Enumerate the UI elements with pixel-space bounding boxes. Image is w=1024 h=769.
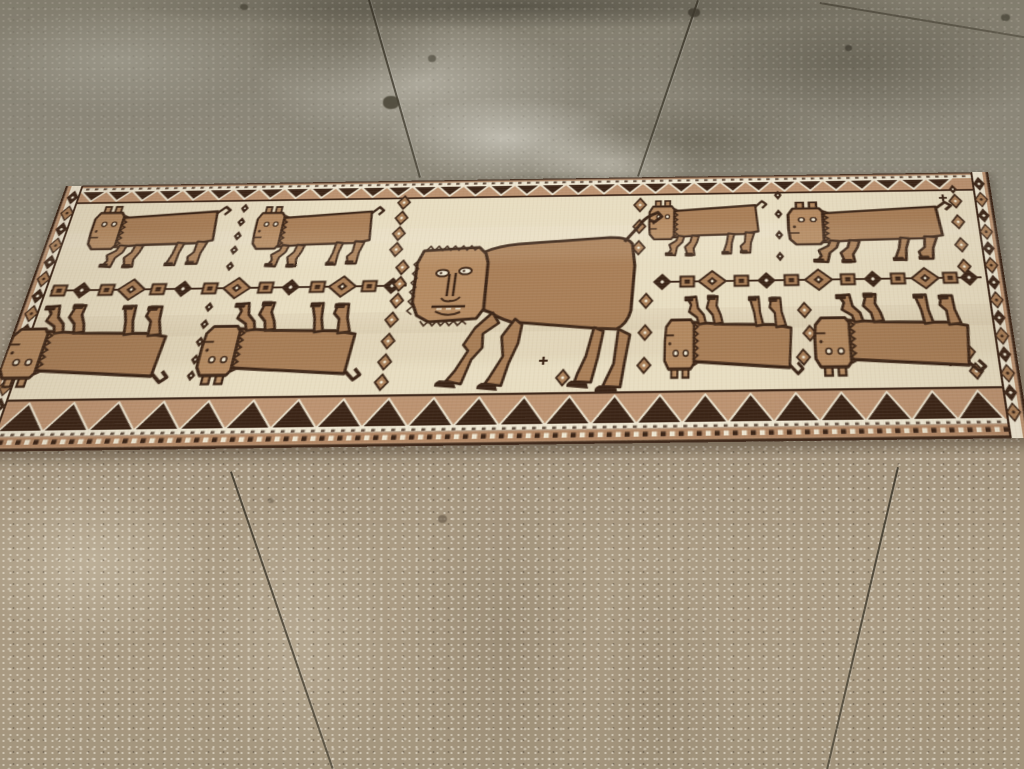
floor-spot [240,4,248,10]
floor-spot [688,8,700,17]
floor-spot [268,498,274,503]
photo-stage [0,0,1024,769]
floor-spot [428,55,436,62]
floor-spot [438,515,447,523]
floor-spot [845,45,852,51]
rug-illustration [0,172,1024,452]
floor-spot [383,96,399,109]
floor-spot [1001,14,1010,21]
lion-rug [0,172,1024,452]
